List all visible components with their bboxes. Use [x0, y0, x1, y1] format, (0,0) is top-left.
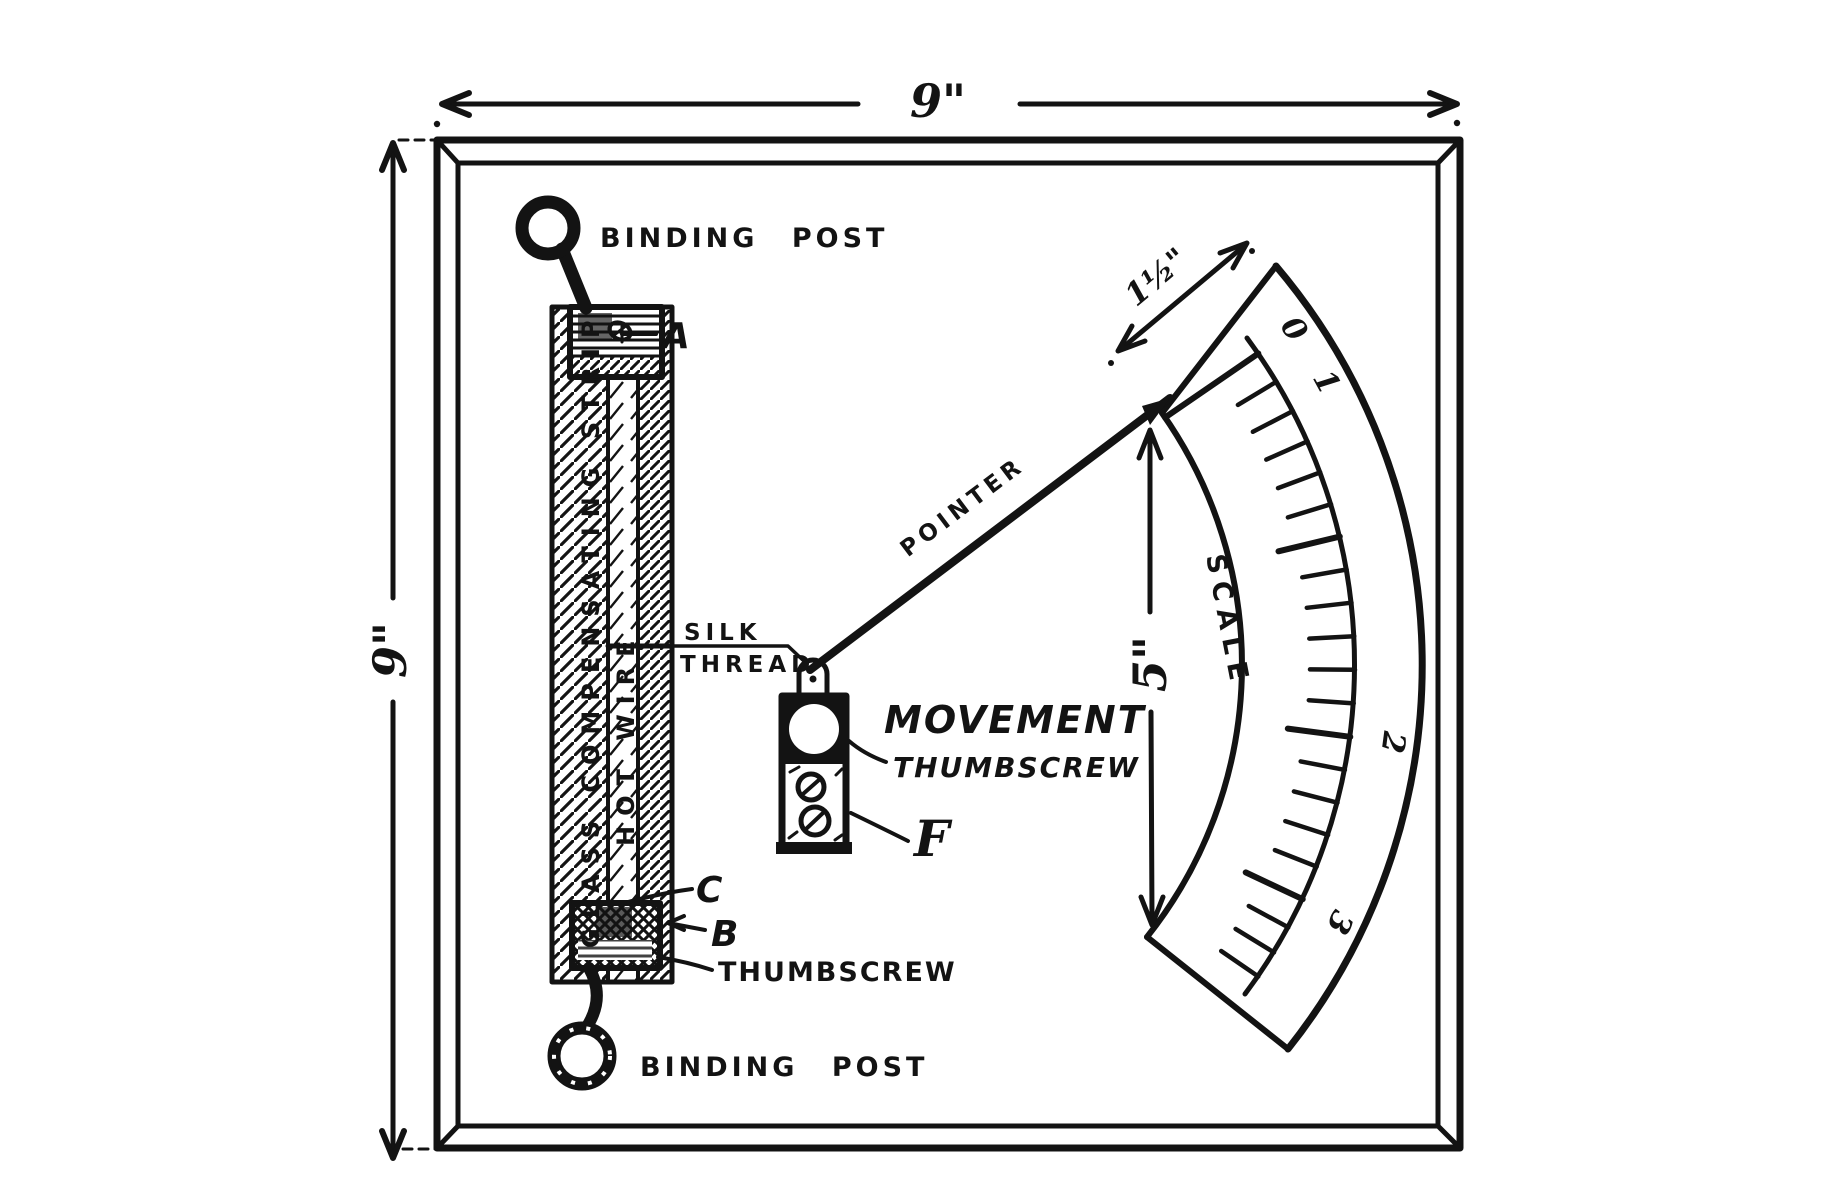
dimension-height-value: 9" — [363, 622, 417, 678]
scale-number: 1 — [1305, 364, 1347, 400]
dimension-scale-height: 5" — [1123, 430, 1177, 925]
dimension-line — [1151, 712, 1152, 920]
binding-post-stem — [586, 968, 597, 1028]
binding-post-bottom-label: BINDING POST — [640, 1052, 928, 1083]
dimension-width-value: 9" — [910, 74, 966, 128]
scale-bottom-edge — [1147, 937, 1288, 1049]
movement-label-2: THUMBSCREW — [893, 751, 1140, 784]
dimension-board-height: 9" — [363, 143, 436, 1158]
dimension-board-width: 9" — [399, 74, 1460, 140]
scale-minor-tick — [1294, 791, 1338, 802]
scale-minor-tick — [1301, 761, 1345, 770]
scale-major-tick — [1246, 872, 1303, 899]
scale-minor-tick — [1309, 636, 1354, 638]
label-b: B — [711, 914, 738, 955]
binding-post-top — [522, 202, 586, 308]
dimension-scale-band-width: 1½" — [1108, 241, 1255, 366]
scale-minor-tick — [1266, 441, 1307, 459]
label-c: C — [696, 870, 723, 911]
binding-post-bottom — [554, 968, 610, 1084]
glass-strip-label: GLASS COMPENSATING STRIP — [577, 311, 605, 948]
hot-wire-meter-diagram: 9" 9" — [0, 0, 1842, 1194]
scale-major-tick — [1165, 354, 1258, 418]
scale-minor-tick — [1309, 700, 1354, 703]
movement-assembly — [776, 660, 852, 854]
scale-minor-tick — [1288, 504, 1331, 517]
scale-band-width-value: 1½" — [1118, 241, 1195, 314]
extension-dot — [1454, 120, 1460, 126]
scale-minor-tick — [1278, 472, 1320, 488]
scale-major-tick — [1288, 729, 1351, 737]
extension-dot — [1249, 248, 1255, 254]
scale-height-value: 5" — [1123, 636, 1177, 692]
scale-graduations: 0123 — [1165, 310, 1412, 976]
scale-minor-tick — [1307, 603, 1352, 608]
label-a: A — [659, 316, 690, 357]
leader-movement-thumbscrew — [849, 741, 886, 762]
binding-post-ring — [522, 202, 574, 254]
pointer-assembly: POINTER — [810, 398, 1170, 670]
scale-minor-tick — [1249, 906, 1289, 927]
movement-thumbscrew-knob — [789, 704, 839, 754]
extension-dot — [434, 121, 440, 127]
thumbscrew-bottom-label: THUMBSCREW — [718, 957, 957, 988]
scale-minor-tick — [1253, 411, 1293, 432]
diagram-canvas: 9" 9" — [0, 0, 1842, 1194]
pointer-label: POINTER — [896, 452, 1030, 562]
leader-f — [851, 813, 908, 841]
movement-label-1: MOVEMENT — [884, 698, 1147, 742]
binding-post-stem — [562, 249, 586, 308]
silk-thread-label-1: SILK — [684, 620, 762, 646]
label-f: F — [912, 809, 953, 868]
callouts: A BINDING POST SILK THREAD MOVEMENT THUM… — [600, 223, 1147, 1083]
extension-dot — [1108, 360, 1114, 366]
scale-number: 3 — [1318, 905, 1360, 940]
hot-wire-label: HOT WIRE — [612, 631, 640, 847]
scale-major-tick — [1279, 537, 1340, 552]
scale-minor-tick — [1221, 951, 1258, 977]
scale-card: 0123 SCALE — [1147, 266, 1422, 1049]
scale-number: 0 — [1273, 310, 1315, 349]
pointer-needle — [810, 398, 1170, 670]
scale-minor-tick — [1285, 821, 1328, 835]
scale-minor-tick — [1302, 570, 1346, 578]
scale-minor-tick — [1238, 382, 1277, 405]
scale-number: 2 — [1374, 728, 1413, 755]
strip-assembly: GLASS COMPENSATING STRIP HOT WIRE — [552, 307, 672, 982]
silk-thread-label-2: THREAD — [680, 652, 815, 678]
scale-minor-tick — [1275, 850, 1317, 867]
scale-minor-tick — [1236, 929, 1274, 953]
binding-post-top-label: BINDING POST — [600, 223, 888, 254]
movement-base — [776, 842, 852, 854]
scale-label: SCALE — [1199, 551, 1255, 690]
